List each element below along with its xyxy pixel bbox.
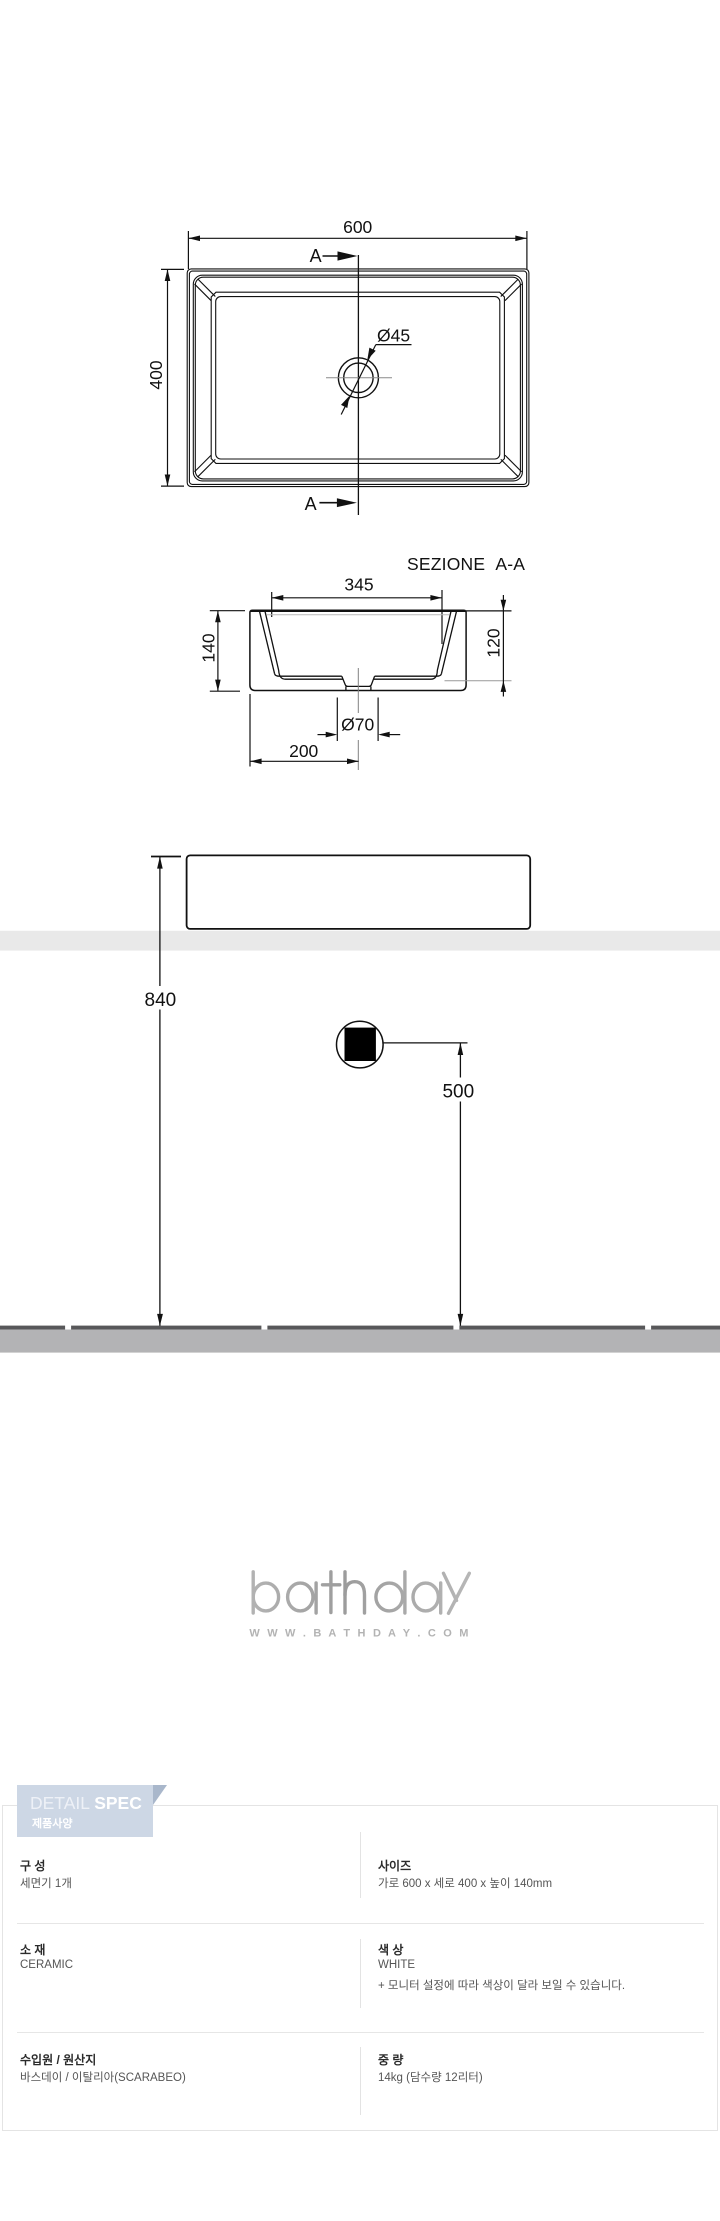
svg-text:200: 200: [289, 741, 318, 761]
svg-text:140: 140: [199, 633, 219, 662]
svg-text:600: 600: [343, 217, 372, 237]
svg-text:120: 120: [484, 628, 504, 657]
svg-text:400: 400: [146, 360, 166, 389]
svg-text:W W W . B A T H D A Y . C O M: W W W . B A T H D A Y . C O M: [249, 1628, 470, 1640]
svg-text:SEZIONE A-A: SEZIONE A-A: [407, 554, 525, 574]
svg-text:345: 345: [344, 575, 373, 595]
svg-text:A: A: [305, 494, 317, 514]
svg-text:500: 500: [442, 1082, 474, 1103]
svg-text:Ø45: Ø45: [377, 326, 410, 346]
svg-text:840: 840: [145, 990, 177, 1011]
svg-text:Ø70: Ø70: [341, 715, 374, 735]
svg-text:A: A: [310, 246, 322, 266]
